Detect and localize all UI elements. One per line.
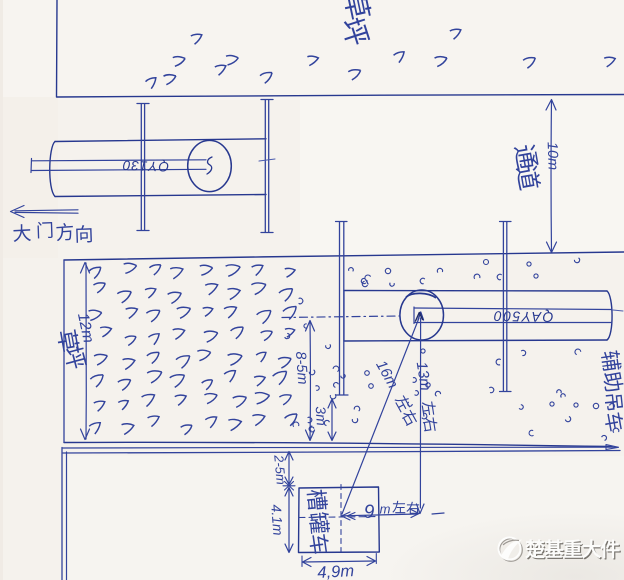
svg-text:QAY500: QAY500 — [492, 308, 553, 325]
svg-text:9: 9 — [364, 502, 375, 523]
svg-text:4.1m: 4.1m — [268, 504, 286, 537]
svg-text:10m: 10m — [544, 142, 561, 171]
svg-text:m: m — [380, 502, 391, 517]
svg-text:8-5m: 8-5m — [292, 351, 310, 385]
svg-text:3m: 3m — [313, 406, 330, 427]
svg-text:QY130: QY130 — [122, 158, 170, 175]
svg-text:4,9m: 4,9m — [317, 562, 355, 580]
svg-text:2-5m: 2-5m — [271, 454, 289, 486]
